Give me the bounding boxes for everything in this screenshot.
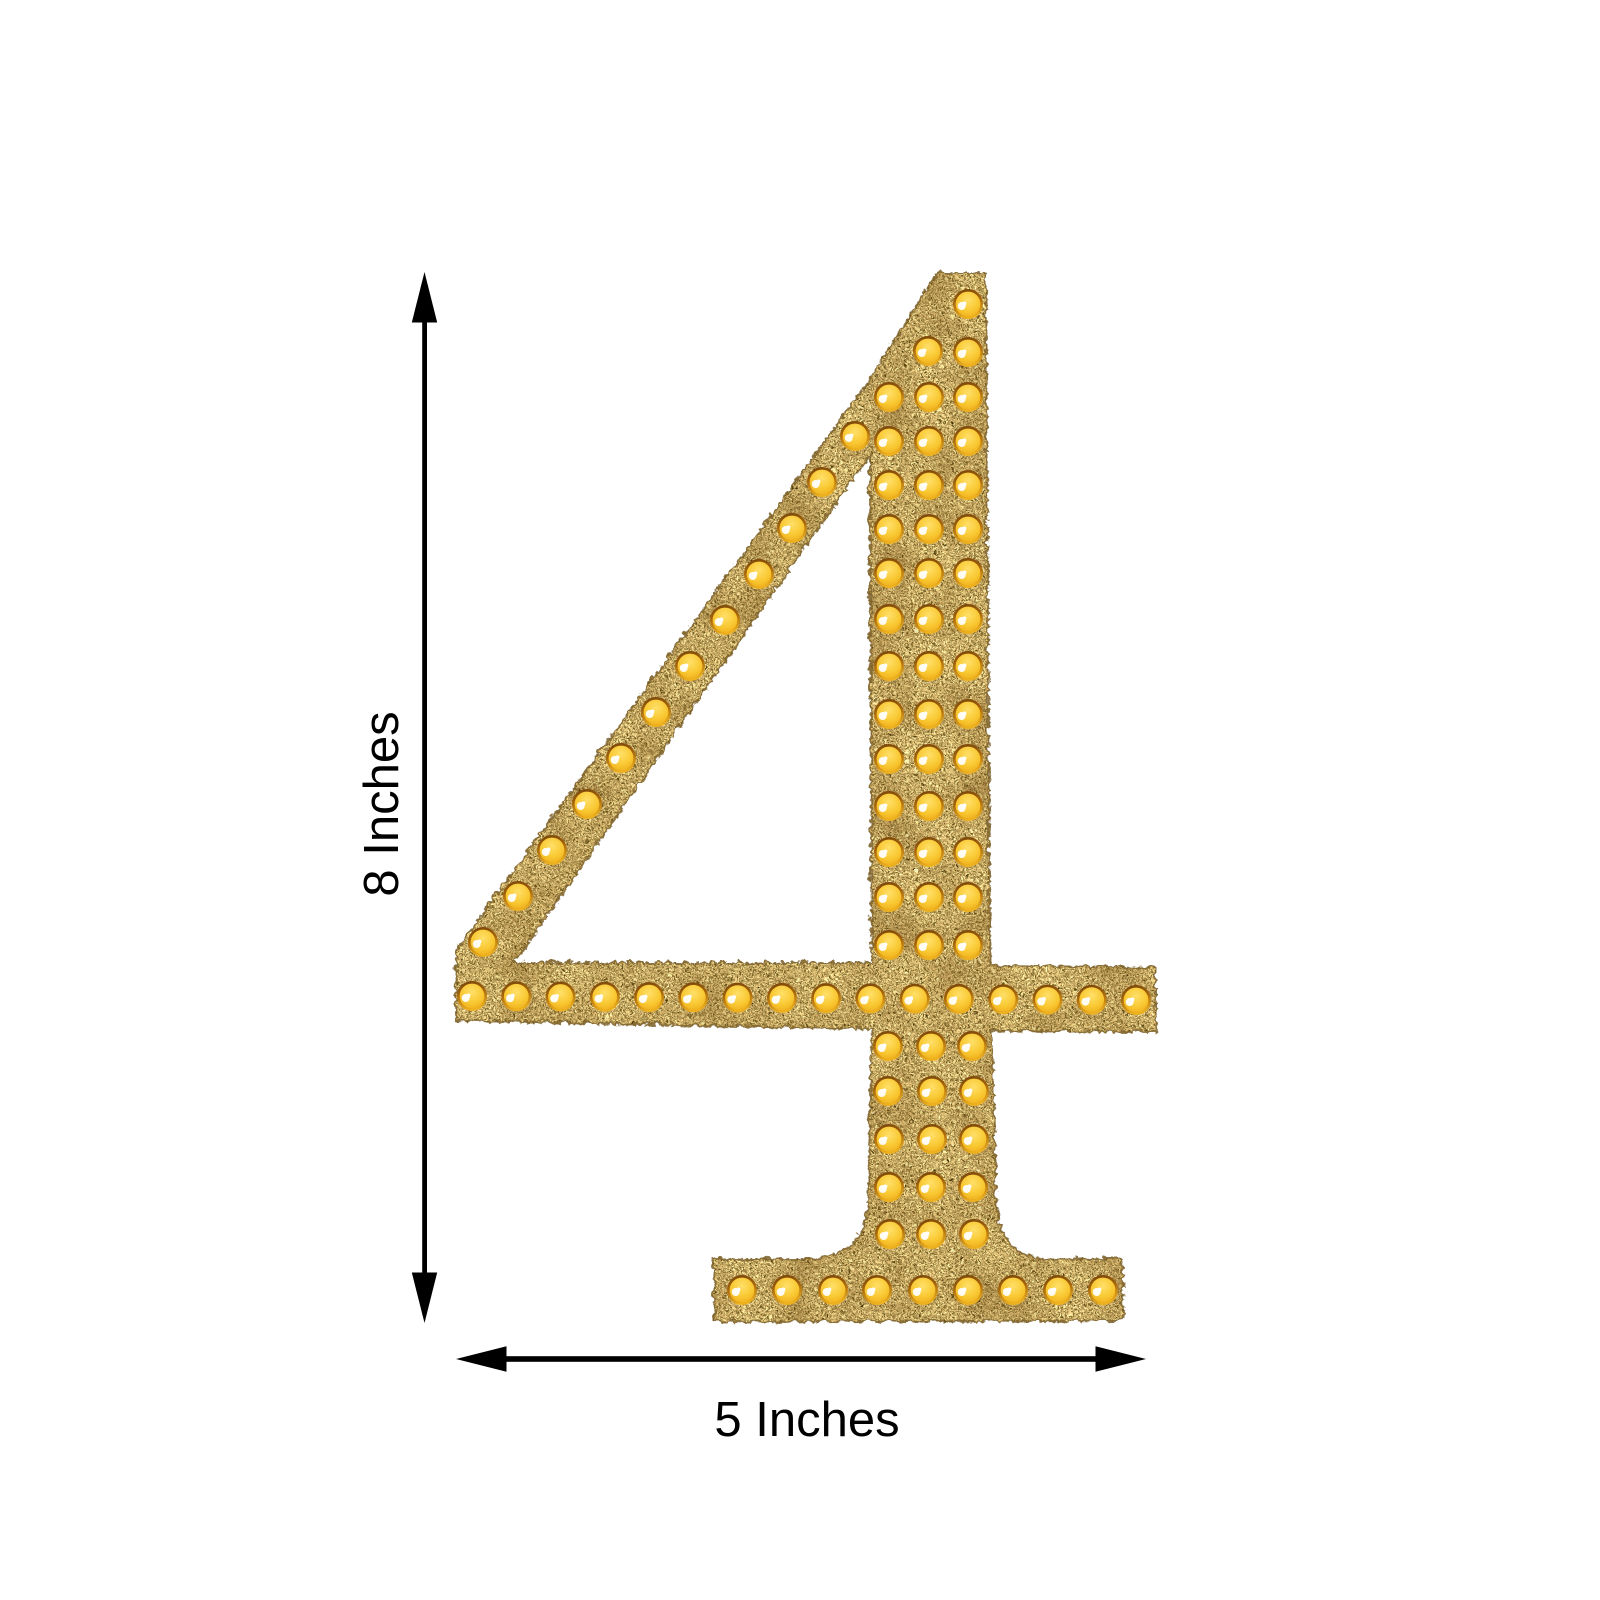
svg-text:8 Inches: 8 Inches bbox=[355, 711, 409, 896]
svg-text:5 Inches: 5 Inches bbox=[714, 1393, 899, 1447]
